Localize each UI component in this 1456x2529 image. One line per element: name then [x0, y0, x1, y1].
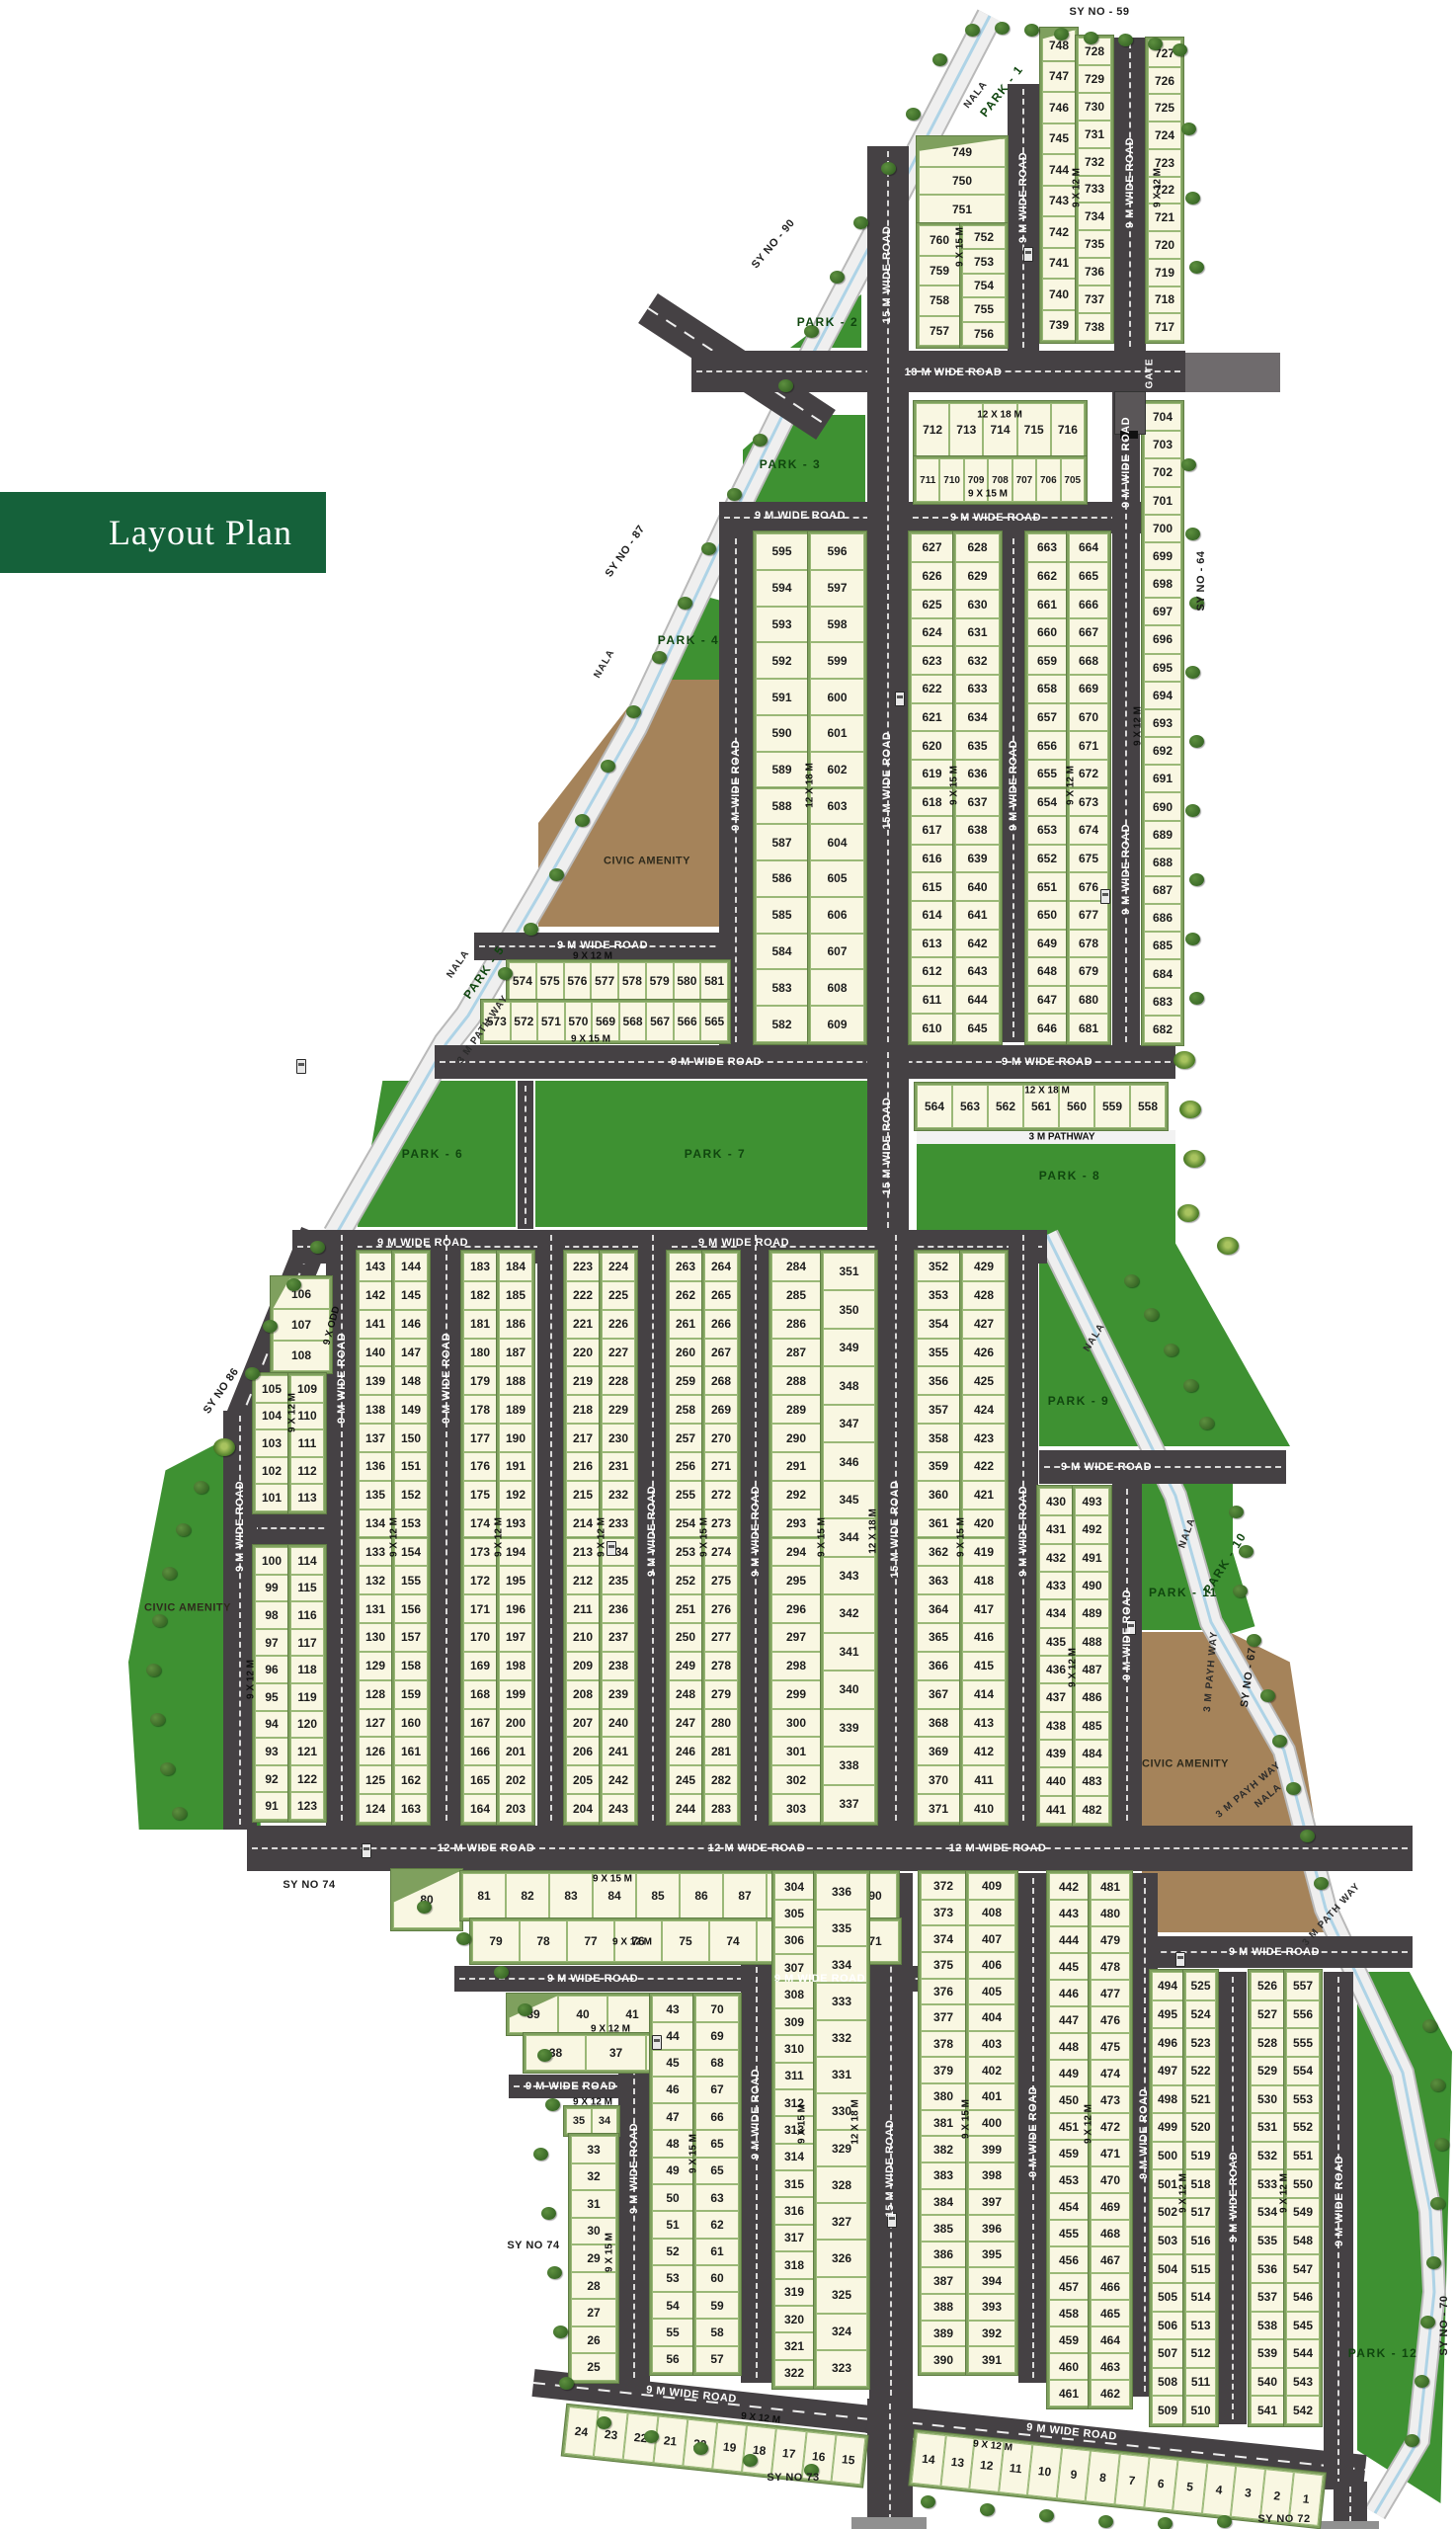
- road-label: 9 M WIDE ROAD: [1008, 740, 1019, 831]
- plot-528: 528: [1251, 2028, 1284, 2057]
- plot-590: 590: [756, 715, 808, 752]
- plot-54: 54: [652, 2292, 693, 2319]
- plot-697: 697: [1144, 598, 1181, 625]
- plot-34: 34: [592, 2108, 617, 2134]
- plot-707: 707: [1012, 458, 1036, 502]
- plot-701: 701: [1144, 487, 1181, 515]
- plot-745: 745: [1042, 123, 1076, 155]
- plot-379: 379: [921, 2057, 966, 2083]
- plot-97: 97: [255, 1629, 288, 1657]
- plot-339: 339: [823, 1709, 875, 1747]
- road-label: 12 M WIDE ROAD: [708, 1842, 806, 1854]
- plot-384: 384: [921, 2189, 966, 2216]
- plot-198: 198: [499, 1652, 532, 1680]
- plot-667: 667: [1069, 618, 1108, 647]
- plot-510: 510: [1185, 2396, 1216, 2424]
- road-label: 9 M WIDE ROAD: [1061, 1461, 1152, 1473]
- plot-74: 74: [709, 1920, 757, 1962]
- tree-icon: [1183, 1379, 1198, 1392]
- road: [247, 1826, 1413, 1871]
- plot-680: 680: [1069, 986, 1108, 1015]
- plot-754: 754: [962, 274, 1006, 297]
- plot-328: 328: [816, 2166, 867, 2203]
- plot-94: 94: [255, 1711, 288, 1739]
- plot-232: 232: [602, 1481, 635, 1509]
- tree-icon: [601, 760, 615, 773]
- plot-size-label: 12 X 18 M: [850, 2099, 861, 2145]
- plot-308: 308: [774, 1981, 814, 2007]
- plot-304: 304: [774, 1873, 814, 1900]
- plot-180: 180: [463, 1339, 497, 1367]
- plot-623: 623: [911, 646, 953, 675]
- plot-509: 509: [1152, 2396, 1183, 2424]
- plot-block: 4344454647484950515253545556: [652, 1996, 693, 2373]
- plot-139: 139: [359, 1366, 392, 1395]
- plot-448: 448: [1049, 2033, 1089, 2060]
- plot-211: 211: [566, 1594, 600, 1623]
- plot-200: 200: [499, 1709, 532, 1738]
- plot-size-label: 9 X 12 M: [1279, 2173, 1290, 2213]
- tree-icon: [1148, 38, 1163, 50]
- plot-519: 519: [1185, 2142, 1216, 2170]
- tree-icon: [1173, 43, 1187, 56]
- plot-473: 473: [1091, 2086, 1130, 2113]
- plot-62: 62: [695, 2211, 739, 2238]
- plot-267: 267: [704, 1339, 738, 1367]
- road-label: 9 M WIDE ROAD: [526, 2080, 616, 2092]
- plot-753: 753: [962, 249, 1006, 273]
- plot-146: 146: [394, 1310, 428, 1339]
- plot-120: 120: [290, 1711, 324, 1739]
- plot-133: 133: [359, 1538, 392, 1567]
- plot-514: 514: [1185, 2283, 1216, 2312]
- plot-427: 427: [962, 1310, 1006, 1339]
- plot-438: 438: [1039, 1712, 1073, 1740]
- plot-block: 6276266256246236226216206196186176166156…: [911, 533, 953, 1042]
- plot-364: 364: [917, 1594, 960, 1623]
- plot-637: 637: [955, 788, 1000, 817]
- tree-icon: [1189, 261, 1204, 274]
- plot-459: 459: [1049, 2326, 1089, 2353]
- plot-172: 172: [463, 1566, 497, 1594]
- plot-size-label: 12 X 18 M: [1024, 1086, 1070, 1097]
- plot-635: 635: [955, 731, 1000, 760]
- plot-122: 122: [290, 1765, 324, 1793]
- tree-icon: [881, 162, 896, 175]
- plot-79: 79: [472, 1920, 520, 1962]
- plot-33: 33: [571, 2136, 616, 2163]
- plot-645: 645: [955, 1014, 1000, 1042]
- plot-557: 557: [1286, 1972, 1320, 2000]
- road-label: 15 M WIDE ROAD: [881, 1098, 893, 1195]
- plot-66: 66: [695, 2103, 739, 2130]
- plot-169: 169: [463, 1652, 497, 1680]
- plot-249: 249: [669, 1652, 702, 1680]
- tree-icon: [743, 2454, 758, 2467]
- plot-466: 466: [1091, 2273, 1130, 2300]
- plot-size-label: 12 X 18 M: [977, 410, 1022, 421]
- park-label: PARK - 2: [797, 315, 858, 329]
- civic-amenity-label: CIVIC AMENITY: [1138, 1757, 1233, 1770]
- plot-55: 55: [652, 2319, 693, 2345]
- plot-265: 265: [704, 1281, 738, 1310]
- plot-178: 178: [463, 1395, 497, 1424]
- plot-167: 167: [463, 1709, 497, 1738]
- plot-454: 454: [1049, 2193, 1089, 2220]
- plot-662: 662: [1027, 562, 1067, 591]
- plot-479: 479: [1091, 1926, 1130, 1953]
- plot-121: 121: [290, 1738, 324, 1765]
- plot-440: 440: [1039, 1767, 1073, 1795]
- plot-459: 459: [1049, 2140, 1089, 2166]
- plot-298: 298: [771, 1652, 821, 1680]
- tree-icon: [1415, 2375, 1429, 2388]
- plot-595: 595: [756, 533, 808, 570]
- plot-489: 489: [1075, 1599, 1109, 1627]
- plot-640: 640: [955, 872, 1000, 901]
- plot-622: 622: [911, 675, 953, 703]
- road-label: 9 M WIDE ROAD: [1228, 2152, 1240, 2243]
- plot-462: 462: [1091, 2380, 1130, 2407]
- park-label: PARK - 11: [1149, 1586, 1218, 1599]
- plot-674: 674: [1069, 816, 1108, 845]
- plot-430: 430: [1039, 1488, 1073, 1515]
- plot-547: 547: [1286, 2254, 1320, 2283]
- road-label: 9 M WIDE ROAD: [750, 1486, 762, 1577]
- plot-441: 441: [1039, 1796, 1073, 1824]
- plot-524: 524: [1185, 2000, 1216, 2029]
- plot-752: 752: [962, 225, 1006, 249]
- plot-block: 100999897969594939291: [255, 1547, 288, 1820]
- plot-140: 140: [359, 1339, 392, 1367]
- plot-552: 552: [1286, 2113, 1320, 2142]
- tree-icon: [853, 216, 868, 229]
- plot-643: 643: [955, 957, 1000, 986]
- plot-621: 621: [911, 703, 953, 732]
- plot-306: 306: [774, 1927, 814, 1954]
- plot-219: 219: [566, 1366, 600, 1395]
- plot-238: 238: [602, 1652, 635, 1680]
- tree-icon: [921, 2495, 935, 2508]
- plot-532: 532: [1251, 2142, 1284, 2170]
- plot-block: 4094084074064054044034024014003993983973…: [968, 1873, 1015, 2373]
- plot-417: 417: [962, 1594, 1006, 1623]
- plot-size-label: 9 X 15 M: [956, 1517, 967, 1557]
- plot-170: 170: [463, 1623, 497, 1652]
- plot-216: 216: [566, 1452, 600, 1481]
- plot-105: 105: [255, 1375, 288, 1403]
- plot-650: 650: [1027, 901, 1067, 930]
- plot-203: 203: [499, 1794, 532, 1823]
- plot-596: 596: [810, 533, 864, 570]
- plot-399: 399: [968, 2136, 1015, 2162]
- plot-407: 407: [968, 1925, 1015, 1952]
- plot-617: 617: [911, 816, 953, 845]
- survey-label: SY NO 74: [507, 2240, 559, 2251]
- plot-252: 252: [669, 1566, 702, 1594]
- plot-710: 710: [939, 458, 963, 502]
- plot-706: 706: [1036, 458, 1060, 502]
- plot-468: 468: [1091, 2220, 1130, 2246]
- plot-63: 63: [695, 2184, 739, 2211]
- plot-393: 393: [968, 2294, 1015, 2321]
- plot-325: 325: [816, 2277, 867, 2314]
- plot-112: 112: [290, 1457, 324, 1485]
- tree-icon: [1189, 992, 1204, 1005]
- plot-83: 83: [549, 1873, 593, 1918]
- tree-icon: [1199, 1417, 1214, 1429]
- plot-342: 342: [823, 1594, 875, 1632]
- plot-602: 602: [810, 752, 864, 788]
- plot-block: 114115116117118119120121122123: [290, 1547, 324, 1820]
- road-label: 9 M WIDE ROAD: [755, 510, 846, 522]
- plot-585: 585: [756, 897, 808, 934]
- road-label: 9 M WIDE ROAD: [547, 1973, 638, 1985]
- plot-27: 27: [571, 2299, 616, 2326]
- tree-icon: [980, 2503, 995, 2516]
- plot-563: 563: [952, 1085, 988, 1128]
- plot-246: 246: [669, 1737, 702, 1765]
- plot-size-label: 9 X 12 M: [573, 951, 612, 962]
- plot-188: 188: [499, 1366, 532, 1395]
- plot-333: 333: [816, 1983, 867, 2019]
- plot-541: 541: [1251, 2396, 1284, 2424]
- plot-183: 183: [463, 1253, 497, 1281]
- plot-135: 135: [359, 1481, 392, 1509]
- plot-491: 491: [1075, 1544, 1109, 1572]
- plot-498: 498: [1152, 2085, 1183, 2114]
- plot-657: 657: [1027, 703, 1067, 732]
- plot-87: 87: [723, 1873, 767, 1918]
- plot-387: 387: [921, 2267, 966, 2294]
- road: [867, 2399, 913, 2525]
- plot-220: 220: [566, 1339, 600, 1367]
- plot-376: 376: [921, 1979, 966, 2005]
- plot-391: 391: [968, 2346, 1015, 2373]
- plot-61: 61: [695, 2239, 739, 2265]
- plot-247: 247: [669, 1709, 702, 1738]
- plot-625: 625: [911, 590, 953, 618]
- tree-icon: [965, 24, 980, 37]
- plot-382: 382: [921, 2136, 966, 2162]
- plot-254: 254: [669, 1509, 702, 1538]
- plot-239: 239: [602, 1680, 635, 1709]
- plot-80: 80: [393, 1871, 460, 1928]
- plot-251: 251: [669, 1594, 702, 1623]
- plot-174: 174: [463, 1509, 497, 1538]
- plot-260: 260: [669, 1339, 702, 1367]
- plot-82: 82: [506, 1873, 549, 1918]
- plot-131: 131: [359, 1594, 392, 1623]
- plot-176: 176: [463, 1452, 497, 1481]
- plot-691: 691: [1144, 765, 1181, 792]
- plot-477: 477: [1091, 1980, 1130, 2006]
- plot-268: 268: [704, 1366, 738, 1395]
- tree-icon: [498, 967, 513, 980]
- plot-181: 181: [463, 1310, 497, 1339]
- plot-209: 209: [566, 1652, 600, 1680]
- plot-515: 515: [1185, 2254, 1216, 2283]
- plot-block: 3523533543553563573583593603613623633643…: [917, 1253, 960, 1823]
- plot-296: 296: [771, 1594, 821, 1623]
- plot-361: 361: [917, 1509, 960, 1538]
- tree-icon: [1189, 873, 1204, 886]
- car-icon: [362, 1843, 371, 1858]
- plot-390: 390: [921, 2346, 966, 2373]
- plot-581: 581: [700, 962, 728, 1000]
- plot-256: 256: [669, 1452, 702, 1481]
- plot-529: 529: [1251, 2057, 1284, 2085]
- plot-134: 134: [359, 1509, 392, 1538]
- plot-536: 536: [1251, 2254, 1284, 2283]
- plot-413: 413: [962, 1709, 1006, 1738]
- plot-553: 553: [1286, 2085, 1320, 2114]
- tree-icon: [176, 1523, 191, 1536]
- plot-628: 628: [955, 533, 1000, 562]
- plot-651: 651: [1027, 872, 1067, 901]
- plot-352: 352: [917, 1253, 960, 1281]
- plot-363: 363: [917, 1566, 960, 1594]
- tree-icon: [1181, 458, 1196, 471]
- plot-255: 255: [669, 1481, 702, 1509]
- plot-426: 426: [962, 1339, 1006, 1367]
- tree-icon: [146, 1664, 161, 1676]
- tree-icon: [1247, 1634, 1261, 1647]
- title-box: Layout Plan: [0, 492, 326, 573]
- plot-632: 632: [955, 646, 1000, 675]
- plot-165: 165: [463, 1765, 497, 1794]
- plot-190: 190: [499, 1424, 532, 1452]
- plot-size-label: 9 X 15 M: [699, 1517, 710, 1557]
- plot-size-label: 9 X 12 M: [1066, 766, 1077, 805]
- plot-385: 385: [921, 2215, 966, 2242]
- plot-size-label: 9 X 12 M: [573, 2097, 612, 2108]
- plot-358: 358: [917, 1424, 960, 1452]
- plot-558: 558: [1130, 1085, 1166, 1128]
- plot-661: 661: [1027, 590, 1067, 618]
- plot-482: 482: [1075, 1796, 1109, 1824]
- plot-264: 264: [704, 1253, 738, 1281]
- plot-638: 638: [955, 816, 1000, 845]
- plot-660: 660: [1027, 618, 1067, 647]
- plot-147: 147: [394, 1339, 428, 1367]
- plot-block: 4294284274264254244234224214204194184174…: [962, 1253, 1006, 1823]
- plot-580: 580: [674, 962, 701, 1000]
- tree-icon: [1189, 735, 1204, 748]
- plot-size-label: 9 X 15 M: [688, 2134, 699, 2173]
- plot-675: 675: [1069, 845, 1108, 873]
- tree-icon: [652, 651, 667, 664]
- plot-37: 37: [586, 2035, 646, 2071]
- plot-444: 444: [1049, 1926, 1089, 1953]
- plot-631: 631: [955, 618, 1000, 647]
- plot-668: 668: [1069, 646, 1108, 675]
- plot-492: 492: [1075, 1515, 1109, 1543]
- plot-656: 656: [1027, 731, 1067, 760]
- plot-282: 282: [704, 1765, 738, 1794]
- plot-685: 685: [1144, 932, 1181, 959]
- plot-460: 460: [1049, 2353, 1089, 2380]
- plot-551: 551: [1286, 2142, 1320, 2170]
- plot-527: 527: [1251, 2000, 1284, 2029]
- plot-106: 106: [273, 1278, 330, 1309]
- plot-323: 323: [816, 2350, 867, 2387]
- plot-186: 186: [499, 1310, 532, 1339]
- plot-262: 262: [669, 1281, 702, 1310]
- plot-60: 60: [695, 2265, 739, 2292]
- plot-149: 149: [394, 1395, 428, 1424]
- plot-236: 236: [602, 1594, 635, 1623]
- palm-tree-icon: [1173, 1051, 1195, 1069]
- tree-icon: [553, 2325, 568, 2338]
- plot-block: 749750751: [919, 138, 1006, 223]
- plot-461: 461: [1049, 2380, 1089, 2407]
- plot-276: 276: [704, 1594, 738, 1623]
- plot-437: 437: [1039, 1683, 1073, 1711]
- plot-415: 415: [962, 1652, 1006, 1680]
- plot-751: 751: [919, 195, 1006, 223]
- tree-icon: [1118, 34, 1133, 46]
- road-label: 9 M WIDE ROAD: [628, 2123, 640, 2214]
- plot-155: 155: [394, 1566, 428, 1594]
- plot-block: 752753754755756: [962, 225, 1006, 346]
- plot-96: 96: [255, 1656, 288, 1683]
- plot-388: 388: [921, 2294, 966, 2321]
- plot-589: 589: [756, 752, 808, 788]
- plot-99: 99: [255, 1575, 288, 1602]
- plot-125: 125: [359, 1765, 392, 1794]
- plot-size-label: 9 X 15 M: [571, 1034, 610, 1045]
- tree-icon: [1144, 1308, 1159, 1321]
- plot-58: 58: [695, 2319, 739, 2345]
- tree-icon: [1217, 2515, 1232, 2528]
- road-label: 9 M WIDE ROAD: [774, 1973, 865, 1985]
- plot-185: 185: [499, 1281, 532, 1310]
- plot-607: 607: [810, 934, 864, 970]
- plot-429: 429: [962, 1253, 1006, 1281]
- plot-486: 486: [1075, 1683, 1109, 1711]
- plot-679: 679: [1069, 957, 1108, 986]
- plot-size-label: 9 X 12 M: [494, 1517, 505, 1557]
- plot-119: 119: [290, 1683, 324, 1711]
- plot-266: 266: [704, 1310, 738, 1339]
- plot-610: 610: [911, 1014, 953, 1042]
- plot-283: 283: [704, 1794, 738, 1823]
- plot-143: 143: [359, 1253, 392, 1281]
- tree-icon: [172, 1807, 187, 1820]
- plot-319: 319: [774, 2279, 814, 2306]
- tree-icon: [1233, 1585, 1248, 1597]
- plot-block: 3723733743753763773783793803813823833843…: [921, 1873, 966, 2373]
- plot-218: 218: [566, 1395, 600, 1424]
- plot-608: 608: [810, 969, 864, 1006]
- tree-icon: [1314, 1877, 1329, 1890]
- plot-583: 583: [756, 969, 808, 1006]
- plot-297: 297: [771, 1623, 821, 1652]
- plot-337: 337: [823, 1785, 875, 1823]
- plot-291: 291: [771, 1452, 821, 1481]
- plot-565: 565: [700, 1002, 728, 1041]
- plot-217: 217: [566, 1424, 600, 1452]
- plot-740: 740: [1042, 279, 1076, 310]
- plot-182: 182: [463, 1281, 497, 1310]
- plot-142: 142: [359, 1281, 392, 1310]
- plot-687: 687: [1144, 876, 1181, 904]
- plot-56: 56: [652, 2346, 693, 2373]
- plot-725: 725: [1148, 94, 1181, 122]
- plot-503: 503: [1152, 2227, 1183, 2255]
- plot-184: 184: [499, 1253, 532, 1281]
